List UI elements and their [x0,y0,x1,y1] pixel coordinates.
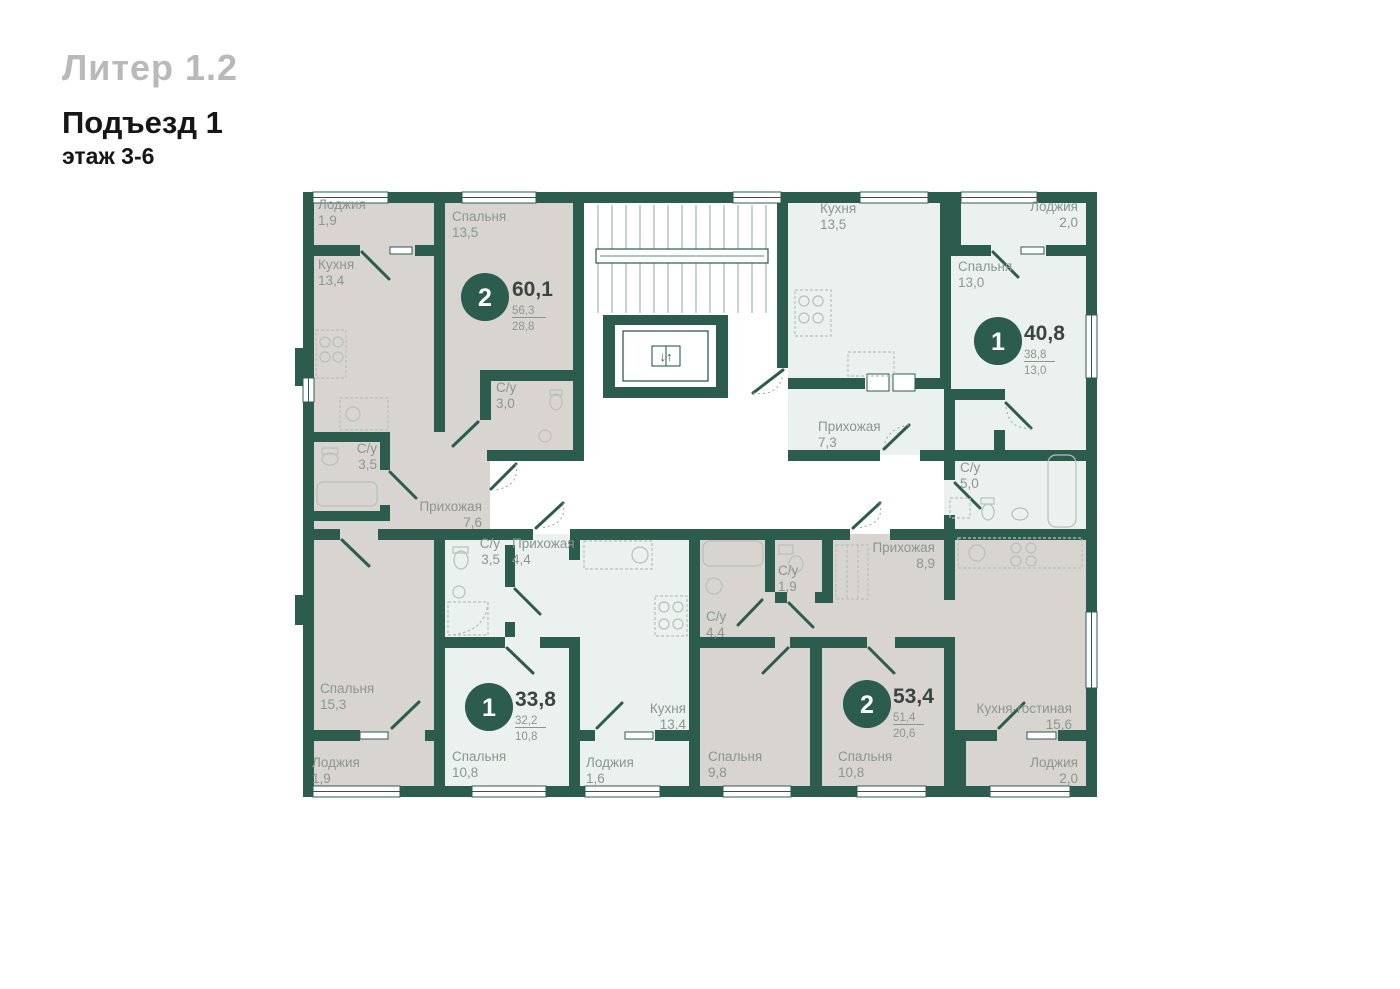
room-label-name: Прихожая [872,540,935,555]
floor-plan-svg: ↓↑ [0,0,1400,989]
rooms-count: 1 [991,328,1005,356]
rooms-count: 2 [478,284,492,312]
room-label-area: 3,0 [496,396,515,411]
floor-plan-page: Литер 1.2 Подъезд 1 этаж 3-6 [0,0,1400,989]
room-label-area: 1,6 [586,771,605,786]
room-label-name: Прихожая [512,536,575,551]
room-label-name: Спальня [838,749,892,764]
room-label-area: 13,5 [820,217,846,232]
area-no-balcony: 38,8 [1024,349,1046,361]
room-label-name: Прихожая [419,499,482,514]
area-living: 28,8 [512,321,534,333]
room-label-name: Кухня [650,701,686,716]
room-label-area: 13,4 [660,717,687,732]
room-label-area: 4,4 [706,625,725,640]
room-label-area: 1,9 [318,213,337,228]
room-label-name: С/у [960,460,981,475]
room-label-name: С/у [778,563,799,578]
room-label-name: Кухня-гостиная [976,701,1072,716]
room-label-area: 15,3 [320,697,346,712]
room-label-name: Лоджия [586,755,634,770]
room-label-area: 7,3 [818,435,837,450]
room-label-area: 3,5 [481,552,500,567]
room-label-name: Лоджия [318,197,366,212]
room-label-name: Лоджия [312,755,360,770]
room-label-area: 13,4 [318,273,345,288]
area-living: 20,6 [893,728,915,740]
elevator-arrows-icon: ↓↑ [660,349,673,364]
area-living: 10,8 [515,731,537,743]
room-label-area: 10,8 [452,765,478,780]
room-label-name: Спальня [708,749,762,764]
room-label-name: Спальня [452,749,506,764]
rooms-count: 1 [482,694,496,722]
room-label-name: С/у [496,380,517,395]
area-living: 13,0 [1024,365,1046,377]
room-label-name: Прихожая [818,419,881,434]
room-label-name: Спальня [320,681,374,696]
rooms-count: 2 [860,691,874,719]
area-total: 40,8 [1024,322,1065,345]
elevator: ↓↑ [623,331,708,381]
room-label-area: 13,0 [958,275,984,290]
room-label-name: Лоджия [1030,755,1078,770]
room-label-name: Спальня [452,209,506,224]
room-label-area: 9,8 [708,765,727,780]
room-label-area: 13,5 [452,225,478,240]
room-label-area: 1,9 [778,579,797,594]
room-label-name: Кухня [318,257,354,272]
room-label-name: С/у [706,609,727,624]
room-label-name: С/у [480,536,501,551]
room-label-area: 4,4 [512,552,531,567]
area-total: 33,8 [515,688,556,711]
room-label-area: 1,9 [312,771,331,786]
room-label-area: 15,6 [1046,717,1072,732]
area-total: 60,1 [512,278,553,301]
room-label-area: 2,0 [1059,771,1078,786]
area-no-balcony: 32,2 [515,715,537,727]
room-label-name: Спальня [958,259,1012,274]
area-no-balcony: 51,4 [893,712,916,724]
room-label-name: Лоджия [1030,199,1078,214]
room-label-area: 2,0 [1059,215,1078,230]
area-no-balcony: 56,3 [512,305,534,317]
room-label-name: Кухня [820,201,856,216]
room-label-area: 10,8 [838,765,864,780]
room-label-area: 8,9 [916,556,935,571]
room-label-area: 3,5 [358,457,377,472]
room-label-area: 5,0 [960,476,979,491]
room-label-name: С/у [357,441,378,456]
area-total: 53,4 [893,685,934,708]
room-label-area: 7,6 [463,515,482,530]
